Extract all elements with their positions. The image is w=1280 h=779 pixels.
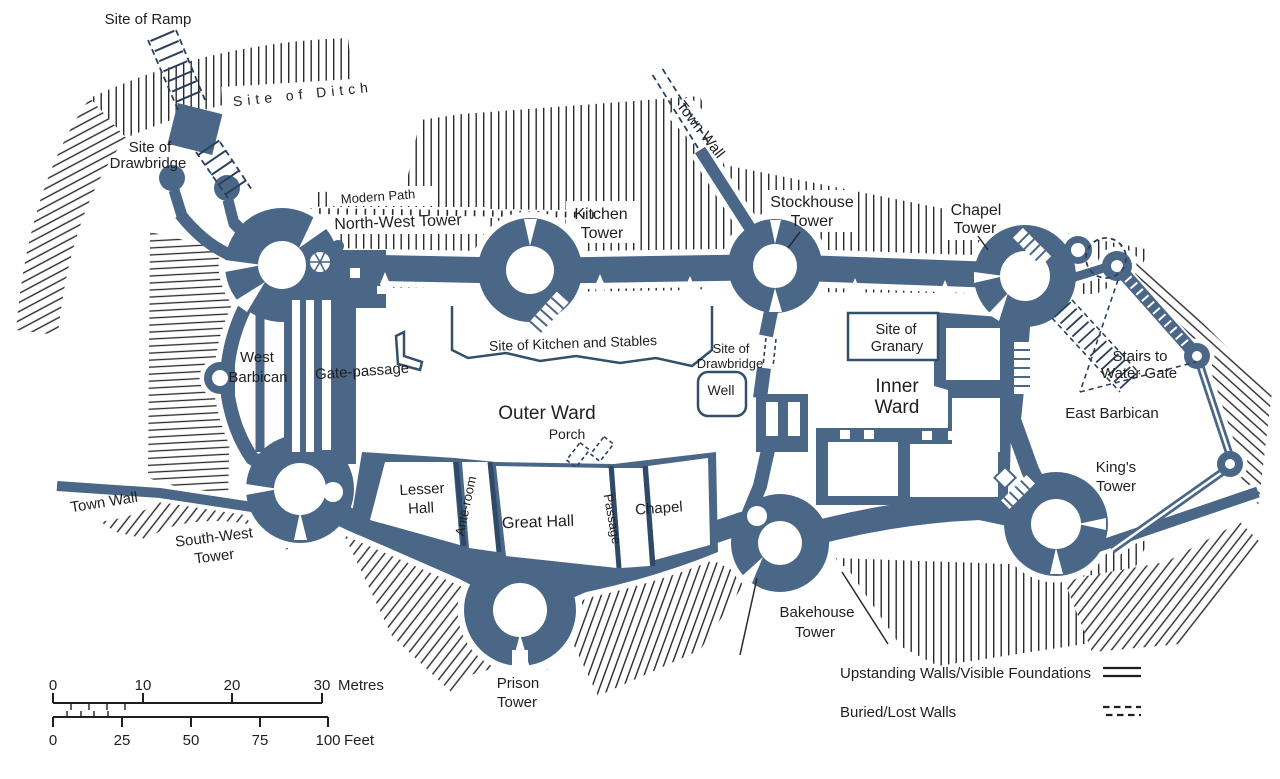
label-kings-tower: King's xyxy=(1096,459,1136,476)
label-stairs-to-water-gate: Stairs to xyxy=(1112,348,1167,365)
label-inner-ward: Inner xyxy=(875,376,919,397)
scale-feet-100: 100 xyxy=(315,732,340,749)
label-prison-tower: Prison xyxy=(497,675,540,692)
label-chapel-tower: Chapel xyxy=(951,202,1002,219)
scale-feet-unit: Feet xyxy=(344,732,375,749)
label-bakehouse-tower: Bakehouse xyxy=(779,604,854,621)
scale-metres-0: 0 xyxy=(49,677,57,694)
label-site-of-granary2: Granary xyxy=(871,339,924,355)
north-curtain-wall xyxy=(283,266,1025,276)
spiral-stair xyxy=(309,251,331,273)
castle-plan-page: Site of Ramp Site of Ditch Site of Drawb… xyxy=(0,0,1280,779)
legend-buried-label: Buried/Lost Walls xyxy=(840,704,956,721)
castle-plan-map: Site of Ramp Site of Ditch Site of Drawb… xyxy=(0,0,1280,779)
label-bakehouse-tower2: Tower xyxy=(795,624,835,641)
label-chapel-room: Chapel xyxy=(635,498,684,518)
label-stockhouse-tower: Stockhouse xyxy=(770,194,854,211)
label-well: Well xyxy=(708,382,735,398)
scale-feet-0: 0 xyxy=(49,732,57,749)
legend-upstanding-label: Upstanding Walls/Visible Foundations xyxy=(840,665,1091,682)
label-prison-tower2: Tower xyxy=(497,694,537,711)
label-site-of-drawbridge-nw: Site of xyxy=(129,139,172,156)
scale-bar xyxy=(53,693,328,727)
scale-feet-75: 75 xyxy=(252,732,269,749)
label-porch: Porch xyxy=(549,426,586,442)
label-site-of-drawbridge-inner: Site of xyxy=(713,341,750,356)
label-site-of-kitchen-and-stables: Site of Kitchen and Stables xyxy=(489,332,658,354)
label-inner-ward2: Ward xyxy=(875,397,920,418)
label-lesser-hall: Lesser xyxy=(399,480,445,499)
label-kings-tower2: Tower xyxy=(1096,478,1136,495)
label-stockhouse-tower2: Tower xyxy=(791,213,834,230)
label-west-barbican: West xyxy=(240,349,275,366)
label-site-of-drawbridge-inner2: Drawbridge xyxy=(697,356,763,371)
label-east-barbican: East Barbican xyxy=(1065,405,1158,422)
scale-metres-30: 30 xyxy=(314,677,331,694)
scale-feet-25: 25 xyxy=(114,732,131,749)
label-chapel-tower2: Tower xyxy=(954,220,997,237)
scale-metres-10: 10 xyxy=(135,677,152,694)
label-kitchen-tower: Kitchen xyxy=(574,206,627,223)
legend-symbols xyxy=(1103,668,1141,715)
label-outer-ward: Outer Ward xyxy=(498,403,596,424)
label-kitchen-tower2: Tower xyxy=(581,225,624,242)
scale-metres-unit: Metres xyxy=(338,677,384,694)
inner-gatehouse-block xyxy=(756,394,808,452)
label-west-barbican2: Barbican xyxy=(228,369,287,386)
label-great-hall: Great Hall xyxy=(502,513,575,533)
label-site-of-drawbridge-nw2: Drawbridge xyxy=(110,155,187,172)
label-stairs-to-water-gate2: Water Gate xyxy=(1101,365,1177,382)
scale-feet-50: 50 xyxy=(183,732,200,749)
scale-metres-20: 20 xyxy=(224,677,241,694)
label-site-of-ramp: Site of Ramp xyxy=(105,11,192,28)
label-lesser-hall2: Hall xyxy=(408,499,435,517)
label-site-of-granary: Site of xyxy=(875,322,917,338)
